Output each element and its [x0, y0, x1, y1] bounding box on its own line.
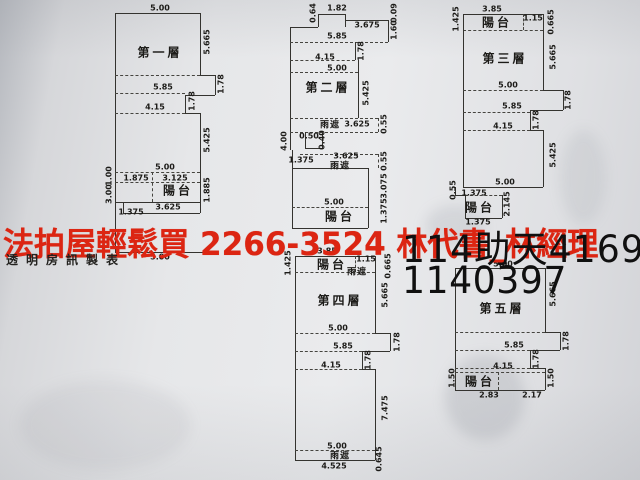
dimension-label: 1.50 [448, 368, 457, 388]
dimension-label: 1.50 [547, 368, 556, 388]
scanned-floorplan-document: 第一層5.005.6651.785.851.784.155.4255.001.0… [0, 0, 640, 480]
floor-title: 第五層 [479, 300, 524, 317]
floorplan-line [455, 332, 545, 333]
floorplan-line [455, 350, 530, 351]
dimension-label: 1.78 [562, 331, 571, 351]
floorplan-line [545, 332, 560, 333]
dimension-label: 5.85 [504, 341, 524, 350]
floorplan-line [498, 372, 499, 390]
case-number-line2: 1140397 [402, 262, 567, 299]
dimension-label: 4.15 [493, 362, 513, 371]
room-label: 陽台 [465, 373, 495, 390]
dimension-label: 1.78 [532, 349, 541, 369]
maker-credit-text: 透明房訊製表 [6, 251, 126, 268]
dimension-label: 2.83 [479, 391, 499, 400]
dimension-label: 2.17 [522, 391, 542, 400]
